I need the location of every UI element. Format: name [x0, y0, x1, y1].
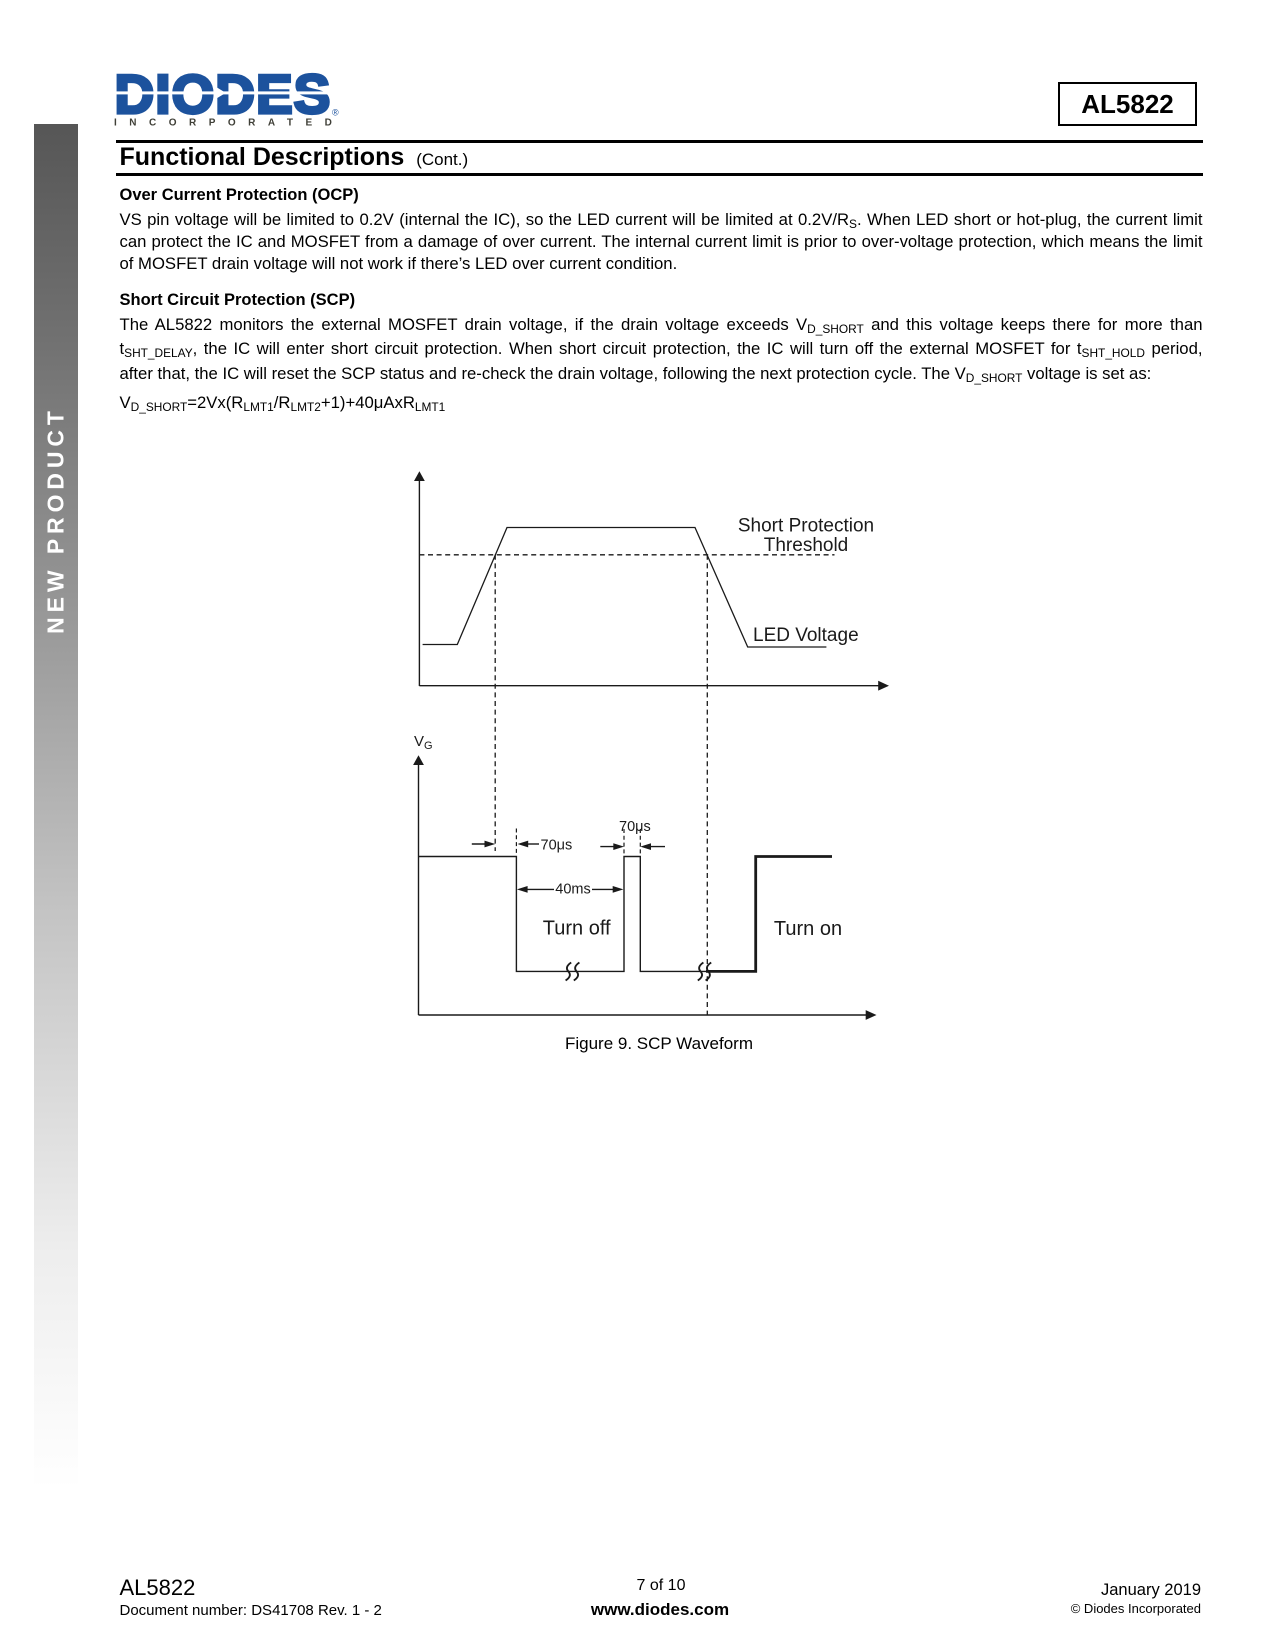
svg-text:70μs: 70μs [619, 819, 651, 835]
svg-text:40ms: 40ms [555, 881, 590, 897]
svg-text:LED Voltage: LED Voltage [753, 625, 859, 646]
svg-text:70μs: 70μs [541, 838, 573, 854]
svg-text:VG: VG [414, 733, 433, 752]
svg-text:Threshold: Threshold [764, 535, 849, 556]
svg-text:Short Protection: Short Protection [738, 516, 874, 537]
svg-text:®: ® [332, 108, 339, 118]
svg-text:INCORPORATED: INCORPORATED [114, 118, 344, 129]
svg-text:Turn on: Turn on [774, 918, 842, 940]
svg-text:Turn off: Turn off [543, 918, 611, 940]
